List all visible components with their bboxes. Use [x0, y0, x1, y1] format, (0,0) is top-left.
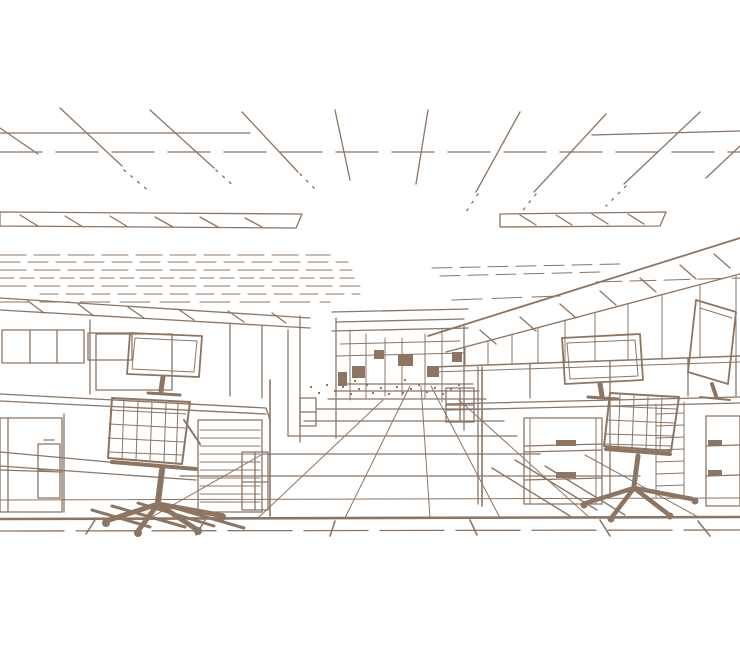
caster-wheel [218, 513, 226, 521]
caster-wheel [134, 529, 142, 537]
left-monitor-stand [161, 377, 163, 391]
caster-wheel [102, 519, 110, 527]
drawer-pull [556, 472, 576, 478]
drawer-pull [708, 470, 722, 476]
drawer-pull [708, 440, 722, 446]
left-chair-stem [158, 470, 162, 502]
caster-wheel [581, 502, 588, 509]
office-line-drawing [0, 0, 740, 645]
drawer-pull [556, 440, 576, 446]
paper-background [0, 0, 740, 645]
caster-wheel [608, 516, 615, 523]
caster-wheel [667, 513, 674, 520]
right-monitor-stand [600, 384, 602, 396]
office-sketch-canvas [0, 0, 740, 645]
caster-wheel [692, 498, 699, 505]
caster-wheel [194, 527, 202, 535]
